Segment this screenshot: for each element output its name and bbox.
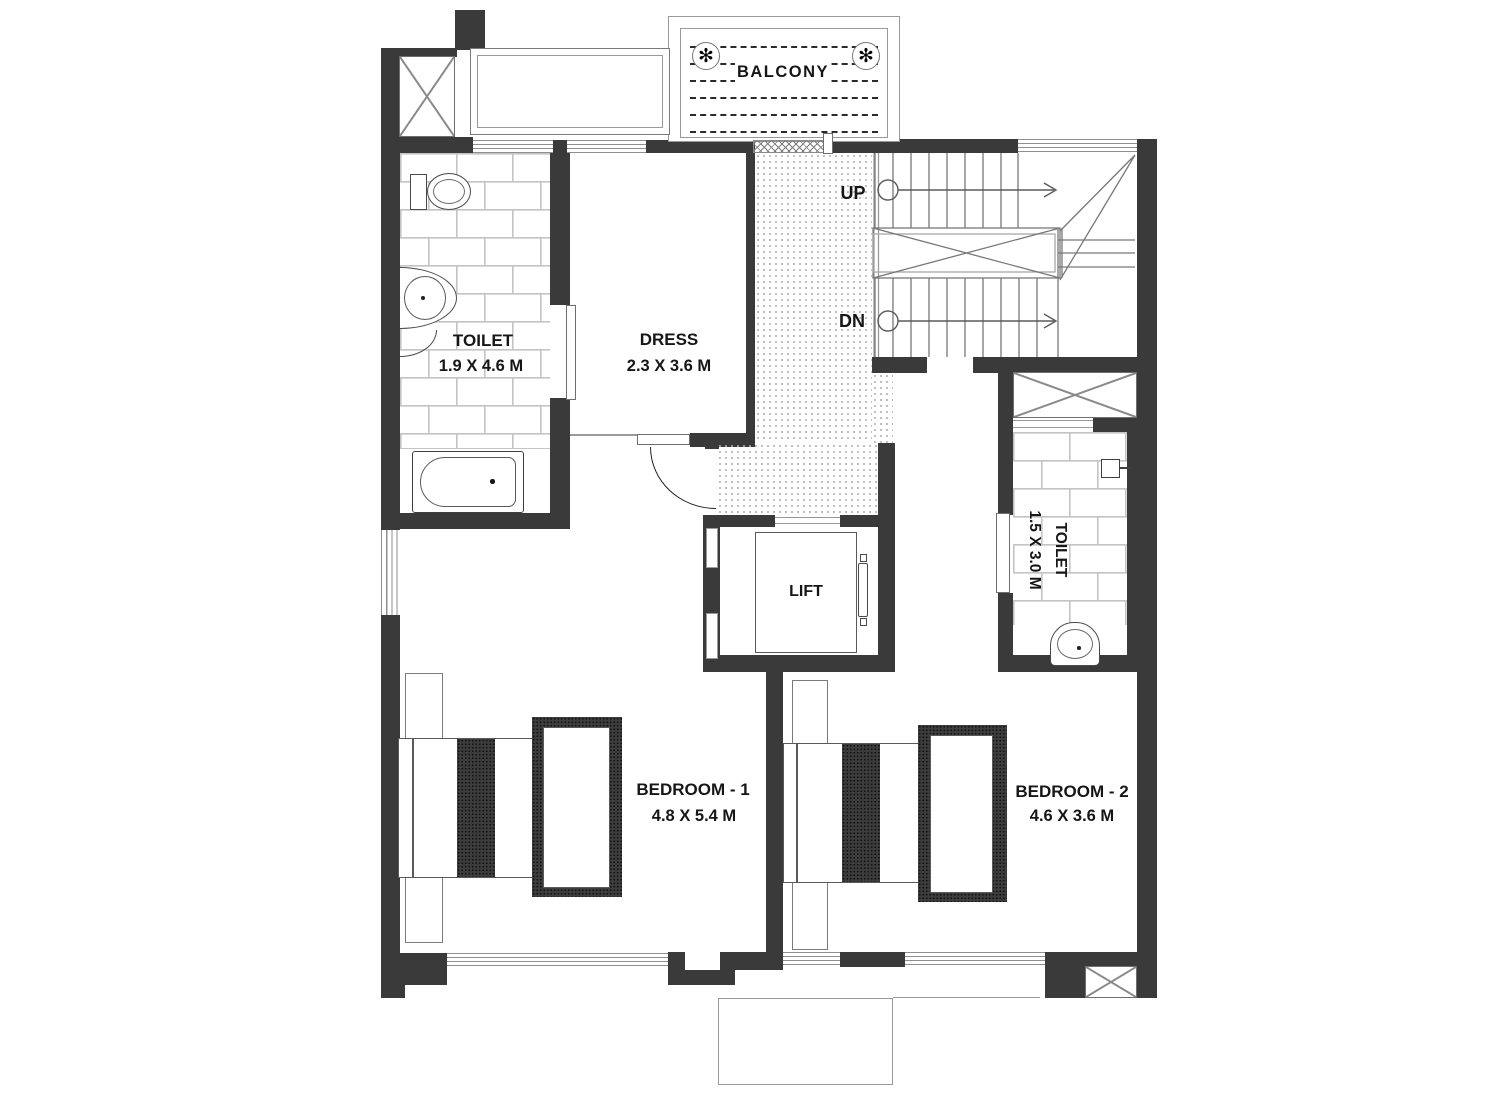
duct-shaft-top-left [399,56,455,137]
bedroom2-dims: 4.6 X 3.6 M [992,807,1152,826]
staircase [872,139,1138,375]
niche-lower [706,613,718,659]
wall-left-top [381,48,400,140]
lift-handle-knob-top [860,554,867,562]
lift-label: LIFT [766,583,846,601]
dress-label: DRESS [609,330,729,350]
wall-stub-top-divider [553,140,567,153]
lintel-dress-opening [570,434,637,436]
wall-shaft-bottom [381,137,473,153]
toilet2-dims: 1.5 X 3.0 M [1020,465,1046,635]
plant-medallion-icon: ✻ [852,42,880,70]
wall-lift-top-left [703,515,775,527]
toilet1-door-leaf [566,305,576,400]
bathtub-drain [490,479,495,484]
lift-door-line-2 [775,523,840,524]
wall-toilet1-right-lower [550,398,570,529]
toilet1-label: TOILET [423,331,543,351]
washbasin-bowl [404,276,446,320]
corridor-floor-right [872,373,893,443]
dress-door-swing [650,447,716,509]
dress-dims: 2.3 X 3.6 M [609,357,729,376]
toilet2-basin-drain [1077,646,1081,650]
bedroom2-pillow [930,735,993,893]
wall-toilet1-right-upper [550,153,570,305]
toilet2-cistern [1101,459,1120,478]
bedroom2-bed-runner [842,744,880,882]
wall-toilet2-left-upper [998,372,1013,515]
terrace-slab-inner [477,55,663,128]
bathtub-inner [420,457,516,507]
bedroom2-bed-fold [796,744,798,882]
wall-bottom-center-3 [720,952,783,970]
wall-toilet2-shelf [1093,417,1137,432]
window-bedroom2-bottom-left [783,952,840,965]
window-dress-top [567,140,646,153]
wall-bottom-mid [840,952,905,967]
floor-plan: ✻ ✻ BALCONY TOILET 1.9 X 4.6 M DRESS 2.3… [0,0,1500,1100]
bedroom2-label: BEDROOM - 2 [992,782,1152,802]
window-bedroom2-bottom-right [905,952,1045,965]
dress-door-leaf [637,434,690,445]
wall-dress-right [746,153,755,437]
bedroom1-bed-fold [412,739,414,877]
bedroom1-label: BEDROOM - 1 [613,780,773,800]
bedroom1-pillow [543,727,610,888]
balcony-deck-line [690,97,878,99]
wall-right-outer [1137,139,1157,998]
balcony-deck-line [690,46,878,48]
balcony-deck-line [690,114,878,116]
washbasin-drain [421,296,425,300]
duct-shaft-bottom-right [1085,966,1137,998]
toilet2-label-block: TOILET 1.5 X 3.0 M [1017,465,1073,635]
balcony-label: BALCONY [735,63,831,82]
window-bedroom1-bottom [447,953,668,966]
toilet2-shelf-line-1 [1013,420,1093,421]
toilet1-tile-edge [400,448,550,449]
balcony-threshold [753,140,825,153]
column-top-left [455,10,485,50]
balcony-door-leaf [823,133,833,154]
toilet2-label: TOILET [1047,465,1073,635]
toilet1-dims: 1.9 X 4.6 M [421,357,541,376]
stairs-dn-label: DN [830,311,874,332]
lift-door-handle [858,563,868,617]
stairs-up-label: UP [831,183,875,204]
wc-tank [410,174,427,210]
niche-upper [706,528,718,568]
wall-lift-bottom [703,655,895,672]
wall-toilet2-right-inner [1127,417,1137,672]
bedroom1-dims: 4.8 X 5.4 M [614,807,774,826]
wall-bottom-center-2 [668,970,735,985]
duct-shaft-toilet2 [1013,372,1137,418]
wall-lift-right [878,443,895,672]
plant-medallion-icon: ✻ [692,42,720,70]
wall-toilet1-left [381,140,400,530]
wall-toilet1-bottom [381,513,570,529]
corridor-floor-lower [717,443,878,515]
lower-floor-line [893,997,1040,998]
bedroom1-bed-runner [457,739,495,877]
window-bedroom1-left [381,530,398,615]
toilet2-shelf-line-2 [1013,427,1093,428]
wc-bowl-inner [433,179,465,204]
wall-bottom-left-stub [381,985,405,998]
lower-floor-projection [718,998,893,1085]
lift-handle-knob-bottom [860,618,867,626]
window-toilet1-top [473,140,553,153]
wall-bottom-left-block [381,953,447,985]
toilet2-cistern-pipe [1120,467,1132,469]
lift-door-line-1 [775,517,840,518]
toilet2-door-leaf [996,513,1010,593]
balcony-deck-line [690,131,878,133]
